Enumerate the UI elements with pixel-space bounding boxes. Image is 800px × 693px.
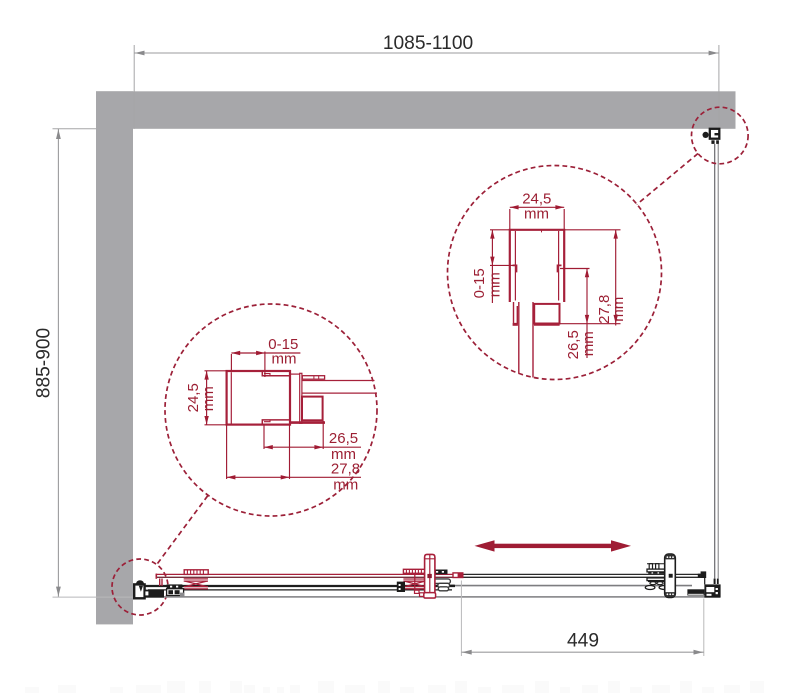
svg-text:mm: mm (487, 272, 504, 297)
svg-text:27,8: 27,8 (331, 460, 360, 477)
svg-text:mm: mm (524, 206, 549, 223)
svg-text:mm: mm (200, 386, 217, 411)
svg-text:mm: mm (580, 331, 597, 356)
svg-text:mm: mm (272, 350, 297, 367)
svg-text:885-900: 885-900 (34, 328, 55, 398)
svg-text:26,5: 26,5 (329, 430, 358, 447)
svg-text:1085-1100: 1085-1100 (383, 33, 473, 54)
svg-text:mm: mm (610, 297, 627, 322)
svg-text:mm: mm (333, 476, 358, 493)
svg-text:449: 449 (567, 631, 599, 652)
svg-text:0-15: 0-15 (471, 268, 488, 298)
